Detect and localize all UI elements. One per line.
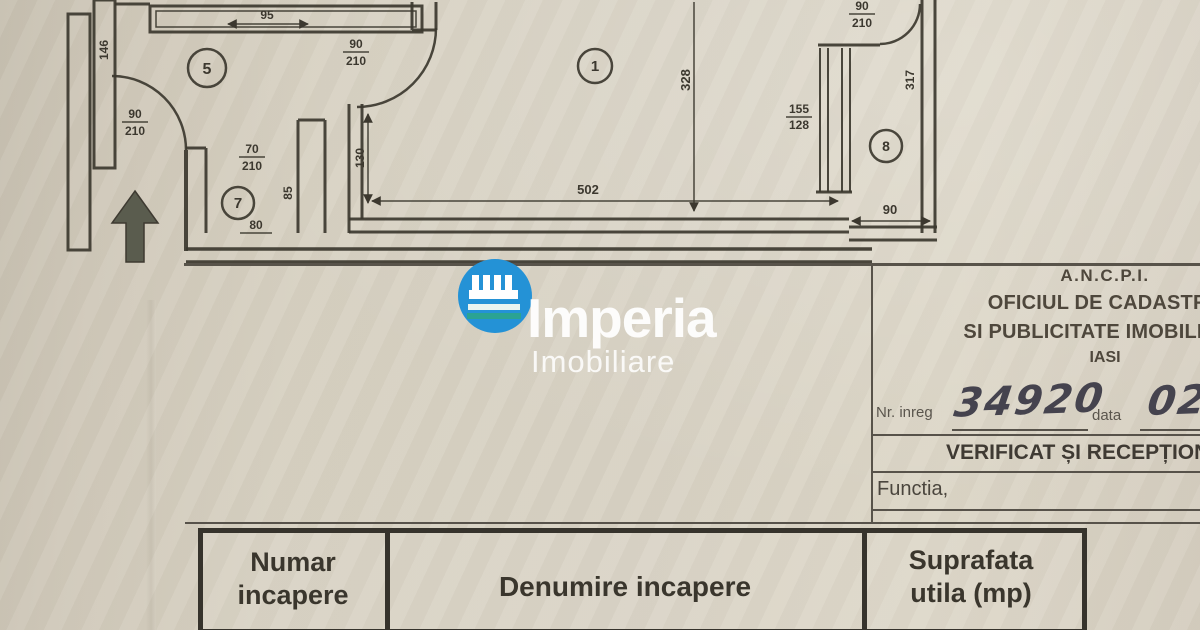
partition-dim-bottom: 128 <box>789 118 809 132</box>
agency-name: A.N.C.P.I. <box>940 266 1200 286</box>
watermark-subtitle: Imobiliare <box>531 344 675 380</box>
door-room7-height: 210 <box>242 159 262 173</box>
door-arc-top <box>357 28 436 107</box>
dim-80: 80 <box>249 218 263 232</box>
dim-502: 502 <box>577 182 599 197</box>
wall-room8-right <box>922 0 935 233</box>
dim-95: 95 <box>260 8 274 22</box>
dim-130: 130 <box>353 148 367 168</box>
table-header-denumire: Denumire incapere <box>390 570 860 603</box>
nr-underline <box>952 429 1088 431</box>
table-top-rule <box>185 522 1200 524</box>
stamp-line-2 <box>871 471 1200 473</box>
left-window-outer <box>68 14 90 250</box>
door-top-width: 90 <box>349 37 363 51</box>
office-line2: SI PUBLICITATE IMOBILIARA <box>940 318 1200 347</box>
wall-room1-bottom <box>349 219 849 232</box>
room-number-7: 7 <box>234 195 242 212</box>
door-room8-height: 210 <box>852 16 872 30</box>
dim-146: 146 <box>97 40 111 60</box>
door-room8-width: 90 <box>855 0 869 13</box>
door-left-height: 210 <box>125 124 145 138</box>
table-header-numar-line1: Numar <box>203 546 383 579</box>
logo-teal-stripe <box>467 313 521 319</box>
wall-room7-left <box>186 148 206 233</box>
scanned-cadastral-sheet: 5 7 1 8 95 146 130 502 328 317 90 85 80 … <box>0 0 1200 630</box>
top-window-band <box>150 6 422 32</box>
verificat-label: VERIFICAT ȘI RECEPȚIONAT <box>946 441 1200 465</box>
table-header-suprafata: Suprafata utila (mp) <box>867 544 1075 610</box>
table-header-suprafata-line2: utila (mp) <box>867 577 1075 610</box>
table-header-suprafata-line1: Suprafata <box>867 544 1075 577</box>
north-arrow-icon <box>112 191 158 262</box>
dim-85: 85 <box>281 186 295 200</box>
wall-room8-bottom <box>849 227 937 240</box>
wall-room7-right <box>298 120 325 233</box>
door-left-width: 90 <box>128 107 142 121</box>
office-line1: OFICIUL DE CADASTRU <box>940 289 1200 318</box>
plan-labels: 5 7 1 8 95 146 130 502 328 317 90 85 80 … <box>97 0 917 232</box>
sheet-divider-vertical <box>871 264 873 524</box>
ancpi-header: A.N.C.P.I. OFICIUL DE CADASTRU SI PUBLIC… <box>940 266 1200 367</box>
partition-window-strip <box>820 48 850 192</box>
nr-inreg-label: Nr. inreg <box>876 404 933 421</box>
stamp-line-1 <box>871 434 1200 436</box>
functia-label: Functia, <box>877 478 948 501</box>
data-value: 02 <box>1145 377 1200 425</box>
dim-328: 328 <box>678 69 693 91</box>
dim-90: 90 <box>883 202 897 217</box>
watermark-brand: Imperia <box>527 286 716 350</box>
partition-dim-top: 155 <box>789 102 809 116</box>
nr-inreg-value: 34920 <box>951 375 1107 426</box>
dim-317: 317 <box>903 70 917 90</box>
data-label: data <box>1092 407 1121 424</box>
door-arc-left <box>112 76 186 150</box>
table-header-denumire-line1: Denumire incapere <box>390 570 860 603</box>
office-city: IASI <box>940 349 1200 367</box>
stamp-line-3 <box>871 509 1200 511</box>
room-number-5: 5 <box>203 61 212 78</box>
imperia-logo-icon <box>456 257 534 335</box>
room-number-1: 1 <box>591 58 599 75</box>
table-header-numar: Numar incapere <box>203 546 383 612</box>
door-top-height: 210 <box>346 54 366 68</box>
door-room7-width: 70 <box>245 142 259 156</box>
table-header-numar-line2: incapere <box>203 579 383 612</box>
room-number-8: 8 <box>882 138 890 154</box>
left-window-inner <box>94 0 115 168</box>
data-underline <box>1140 429 1200 431</box>
door-arc-room8 <box>880 4 920 44</box>
